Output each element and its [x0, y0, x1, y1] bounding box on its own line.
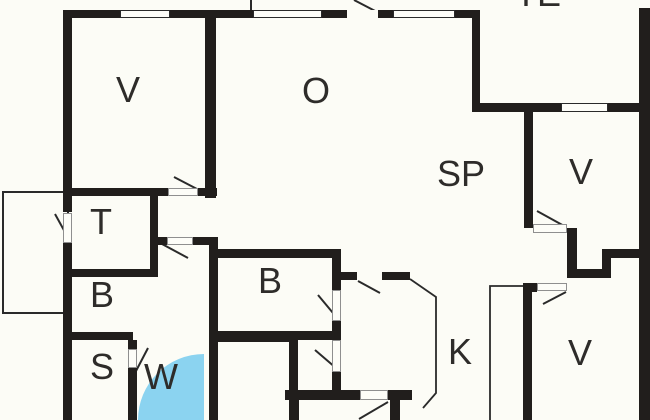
room-label-v-top-left: V — [116, 72, 140, 108]
wall-segment — [388, 390, 412, 400]
room-label-sp: SP — [437, 156, 485, 192]
wall-segment — [198, 188, 217, 196]
partition-thin-line — [410, 279, 436, 408]
door-opening — [347, 10, 378, 18]
wall-segment — [205, 18, 216, 198]
wall-segment — [285, 390, 360, 400]
wall-segment — [209, 237, 218, 420]
wall-segment — [472, 103, 648, 112]
wall-segment — [158, 237, 167, 245]
wall-segment — [639, 8, 650, 420]
room-label-v-right-lower: V — [568, 335, 592, 371]
room-label-t: T — [90, 204, 112, 240]
wall-segment — [602, 249, 611, 278]
wall-segment — [218, 249, 341, 258]
wall-segment — [382, 272, 410, 280]
kitchen-counter-line — [490, 286, 523, 420]
room-label-te: TE — [515, 0, 561, 12]
wall-segment — [289, 400, 299, 420]
wall-segment — [72, 269, 158, 277]
door-opening — [360, 390, 388, 400]
room-label-w: W — [144, 359, 178, 395]
room-label-b-left: B — [90, 277, 114, 313]
wall-segment — [523, 283, 532, 420]
door-swing-line — [359, 402, 388, 419]
wall-segment — [332, 249, 341, 290]
wall-segment — [337, 272, 357, 280]
door-opening — [167, 237, 193, 245]
wall-segment — [128, 368, 137, 420]
wall-segment — [332, 372, 341, 392]
door-opening — [332, 290, 341, 321]
room-label-o: O — [302, 73, 330, 109]
porch-outline — [3, 192, 68, 313]
floorplan-canvas: V O TE SP V T B B S W K V — [0, 0, 650, 420]
room-label-k: K — [448, 334, 472, 370]
wall-segment — [128, 340, 137, 349]
door-opening — [168, 188, 198, 196]
wall-segment — [524, 110, 533, 228]
door-opening — [63, 213, 72, 243]
door-opening — [537, 283, 567, 291]
room-label-b-center: B — [258, 263, 282, 299]
door-swing-line — [162, 244, 188, 258]
wall-segment — [472, 10, 480, 112]
room-label-v-right-upper: V — [569, 154, 593, 190]
door-opening — [128, 349, 137, 368]
window — [120, 10, 170, 18]
door-opening — [533, 224, 567, 233]
room-label-s: S — [90, 349, 114, 385]
window — [393, 10, 455, 18]
window — [561, 103, 608, 112]
door-swing-line — [543, 292, 566, 304]
wall-segment — [63, 10, 72, 212]
wall-segment — [150, 189, 158, 277]
wall-segment — [390, 400, 400, 420]
window — [253, 10, 322, 18]
wall-segment — [63, 332, 133, 340]
wall-segment — [611, 249, 648, 258]
wall-segment — [218, 333, 298, 342]
door-opening — [332, 340, 341, 372]
door-swing-line — [358, 281, 380, 293]
